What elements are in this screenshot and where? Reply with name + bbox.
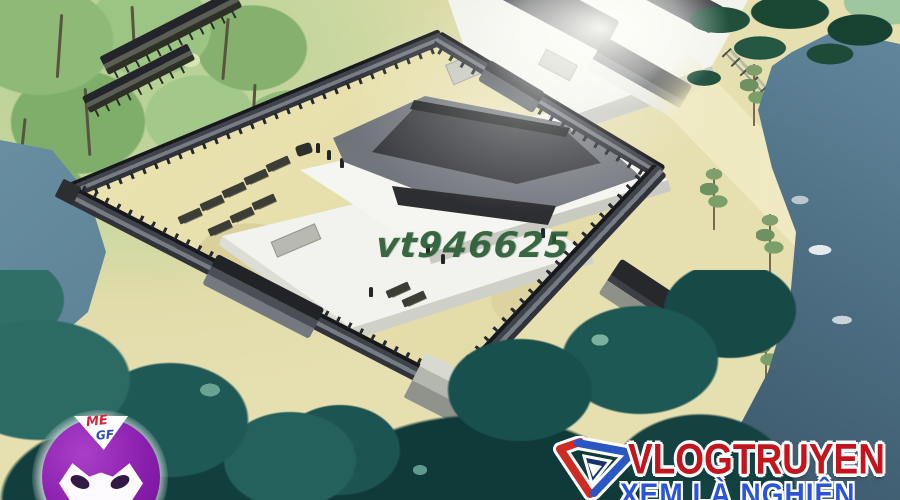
publisher-tagline: XEM LÀ NGHIỆN	[620, 479, 855, 500]
translator-logo: ME GF	[26, 404, 176, 500]
foliage-top-right	[660, 0, 900, 100]
pine-tree	[700, 168, 728, 230]
person-figure	[316, 143, 320, 153]
manga-panel: vt946625 ME GF VLOGTRUYEN XEM LÀ NGHIỆN	[0, 0, 900, 500]
pine-tree	[756, 214, 784, 276]
publisher-wordmark: VLOGTRUYEN	[628, 438, 885, 481]
person-figure	[327, 150, 331, 160]
watermark-text: vt946625	[375, 226, 571, 266]
